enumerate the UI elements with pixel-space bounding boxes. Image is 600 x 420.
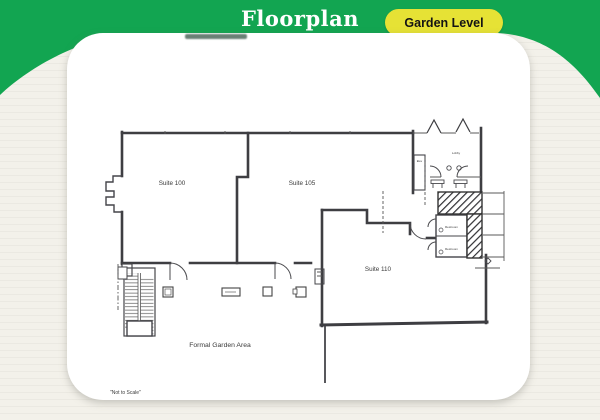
floorplan-card: Suite 100 Suite 105 Suite 110 Formal Gar… — [67, 33, 530, 400]
scale-note-label: "Not to Scale" — [110, 390, 141, 396]
lobby-label: Lobby — [452, 151, 461, 155]
suite-100-label: Suite 100 — [159, 180, 186, 187]
garden-planters — [163, 287, 306, 297]
entry-doors — [427, 119, 470, 133]
page-title: Floorplan — [0, 6, 600, 31]
elevator-label: Elev — [417, 159, 423, 163]
suite-105-label: Suite 105 — [289, 180, 316, 187]
restroom-upper-label: Restroom — [445, 225, 459, 229]
suite-110-label: Suite 110 — [365, 266, 392, 273]
garden-area-label: Formal Garden Area — [189, 342, 251, 349]
restroom-lower-label: Restroom — [445, 247, 459, 251]
garden-level-button[interactable]: Garden Level — [385, 9, 503, 36]
floorplan-drawing: Suite 100 Suite 105 Suite 110 Formal Gar… — [67, 33, 530, 400]
staircase — [118, 267, 154, 336]
